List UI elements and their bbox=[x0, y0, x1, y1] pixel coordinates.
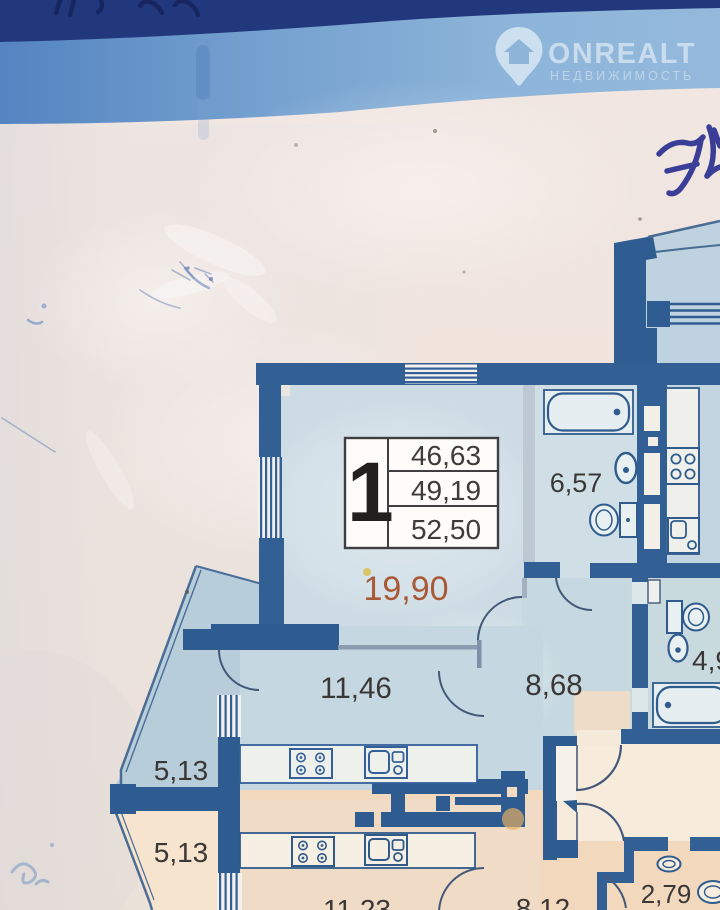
svg-text:2,79: 2,79 bbox=[641, 879, 692, 909]
svg-text:8,12: 8,12 bbox=[516, 893, 571, 910]
svg-text:5,13: 5,13 bbox=[154, 837, 209, 868]
svg-text:52,50: 52,50 bbox=[411, 514, 481, 545]
svg-text:5,13: 5,13 bbox=[154, 755, 209, 786]
svg-text:1: 1 bbox=[347, 445, 394, 539]
svg-text:19,90: 19,90 bbox=[363, 570, 448, 608]
svg-text:8,68: 8,68 bbox=[525, 669, 582, 702]
svg-text:11,23: 11,23 bbox=[323, 894, 391, 910]
svg-text:6,57: 6,57 bbox=[550, 468, 603, 498]
svg-text:ONREALT: ONREALT bbox=[548, 38, 696, 70]
svg-text:4,9: 4,9 bbox=[692, 645, 720, 676]
svg-text:49,19: 49,19 bbox=[411, 475, 481, 506]
svg-text:11,46: 11,46 bbox=[320, 672, 392, 705]
svg-text:НЕДВИЖИМОСТЬ: НЕДВИЖИМОСТЬ bbox=[550, 69, 694, 83]
svg-text:46,63: 46,63 bbox=[411, 440, 481, 471]
